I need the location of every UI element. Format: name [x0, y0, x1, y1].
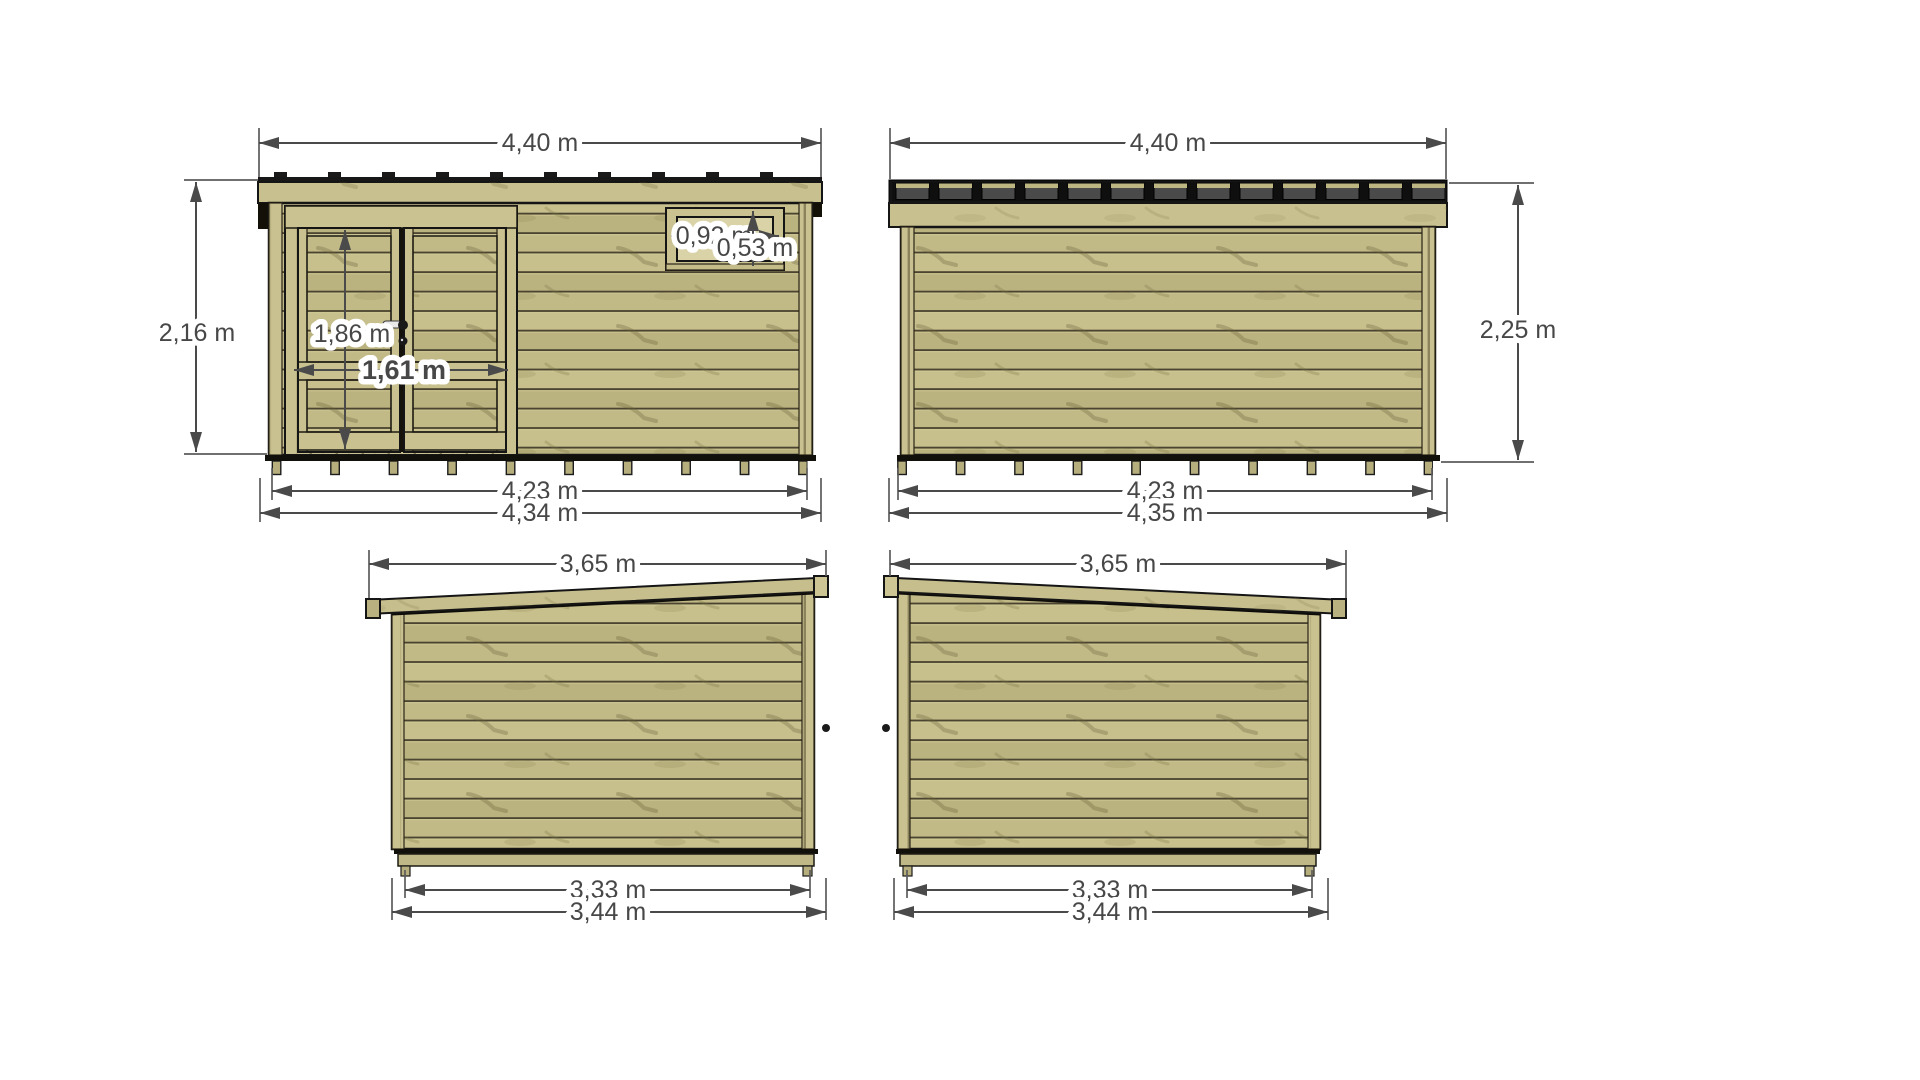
- left-side-roof-end-cap-right: [814, 576, 828, 597]
- right-side-foundation-plinth: [900, 854, 1316, 866]
- front-corner-trim-left: [269, 203, 282, 455]
- right-side-roof-end-cap-left: [884, 576, 898, 597]
- back-bottom-outer-width-label: 4,35 m: [1127, 499, 1203, 527]
- back-corner-trim-left: [901, 227, 914, 455]
- right-side-door-handle-dot: [882, 724, 890, 732]
- right-side-corner-trim-right: [1308, 612, 1320, 849]
- left-side-wall-grain: [392, 591, 814, 849]
- door-handle-knob: [398, 320, 408, 330]
- left-side-corner-trim-right: [802, 592, 814, 849]
- back-foundation-feet: [897, 461, 1433, 476]
- front-roof-overhang-shadow-right: [813, 203, 822, 217]
- front-roof-batten-ends: [274, 172, 810, 177]
- left-side-door-handle-dot: [822, 724, 830, 732]
- door-right-leaf-grain: [404, 228, 506, 452]
- front-base-beam: [265, 455, 816, 461]
- front-foundation-feet: [272, 461, 808, 476]
- back-base-beam: [897, 455, 1440, 461]
- window-sill: [666, 264, 784, 270]
- back-wall-grain: [901, 227, 1435, 455]
- door-keyhole: [399, 337, 408, 346]
- left-side-elevation-view: 3,65 m 3,33 m 3,44 m: [366, 550, 830, 926]
- left-side-outer-depth-label: 3,44 m: [570, 898, 646, 926]
- front-corner-trim-right: [799, 203, 812, 455]
- back-top-width-dimension: 4,40 m: [890, 128, 1446, 179]
- right-side-corner-trim-left: [898, 592, 910, 849]
- door-height-label: 1,86 m: [314, 320, 390, 348]
- front-top-width-dimension: 4,40 m: [259, 128, 821, 177]
- front-bottom-outer-width-label: 4,34 m: [502, 499, 578, 527]
- left-side-corner-trim-left: [392, 612, 404, 849]
- front-top-width-label: 4,40 m: [502, 129, 578, 157]
- shed-elevations-svg: 4,40 m 2,16 m 1,86 m 1,61 m 0,92 m 0,53 …: [0, 0, 1920, 1080]
- left-side-roof-end-cap-left: [366, 599, 380, 618]
- left-side-top-depth-label: 3,65 m: [560, 550, 636, 578]
- back-roof-boards: [892, 182, 1445, 201]
- back-right-height-label: 2,25 m: [1480, 316, 1556, 344]
- right-side-wall-grain: [898, 591, 1320, 849]
- door-left-leaf-bottom-rail: [298, 432, 400, 450]
- door-right-leaf-bottom-rail: [404, 432, 506, 450]
- door-width-label: 1,61 m: [362, 355, 446, 385]
- door-right-leaf-stile: [497, 228, 506, 452]
- back-roof-fascia-grain: [889, 203, 1447, 227]
- door-left-leaf-stile: [298, 228, 307, 452]
- back-right-height-dimension: 2,25 m: [1441, 183, 1556, 462]
- technical-drawing-canvas: 4,40 m 2,16 m 1,86 m 1,61 m 0,92 m 0,53 …: [0, 0, 1920, 1080]
- front-left-height-dimension: 2,16 m: [159, 180, 267, 454]
- door-keyhole-highlight: [401, 339, 403, 341]
- right-side-outer-depth-label: 3,44 m: [1072, 898, 1148, 926]
- window-height-label: 0,53 m: [717, 234, 793, 262]
- right-side-roof-end-cap-right: [1332, 599, 1346, 618]
- right-side-elevation-view: 3,65 m 3,33 m 3,44 m: [882, 550, 1346, 926]
- front-roof-overhang-shadow-left: [258, 203, 269, 229]
- right-side-top-depth-label: 3,65 m: [1080, 550, 1156, 578]
- front-left-height-label: 2,16 m: [159, 319, 235, 347]
- front-roof-fascia-grain: [258, 182, 822, 203]
- left-side-foundation-plinth: [398, 854, 814, 866]
- back-elevation-view: 4,40 m 2,25 m 4,23 m 4,35 m: [889, 128, 1556, 527]
- back-top-width-label: 4,40 m: [1130, 129, 1206, 157]
- front-elevation-view: 4,40 m 2,16 m 1,86 m 1,61 m 0,92 m 0,53 …: [159, 128, 822, 527]
- back-corner-trim-right: [1422, 227, 1435, 455]
- door-head-rail: [285, 206, 517, 228]
